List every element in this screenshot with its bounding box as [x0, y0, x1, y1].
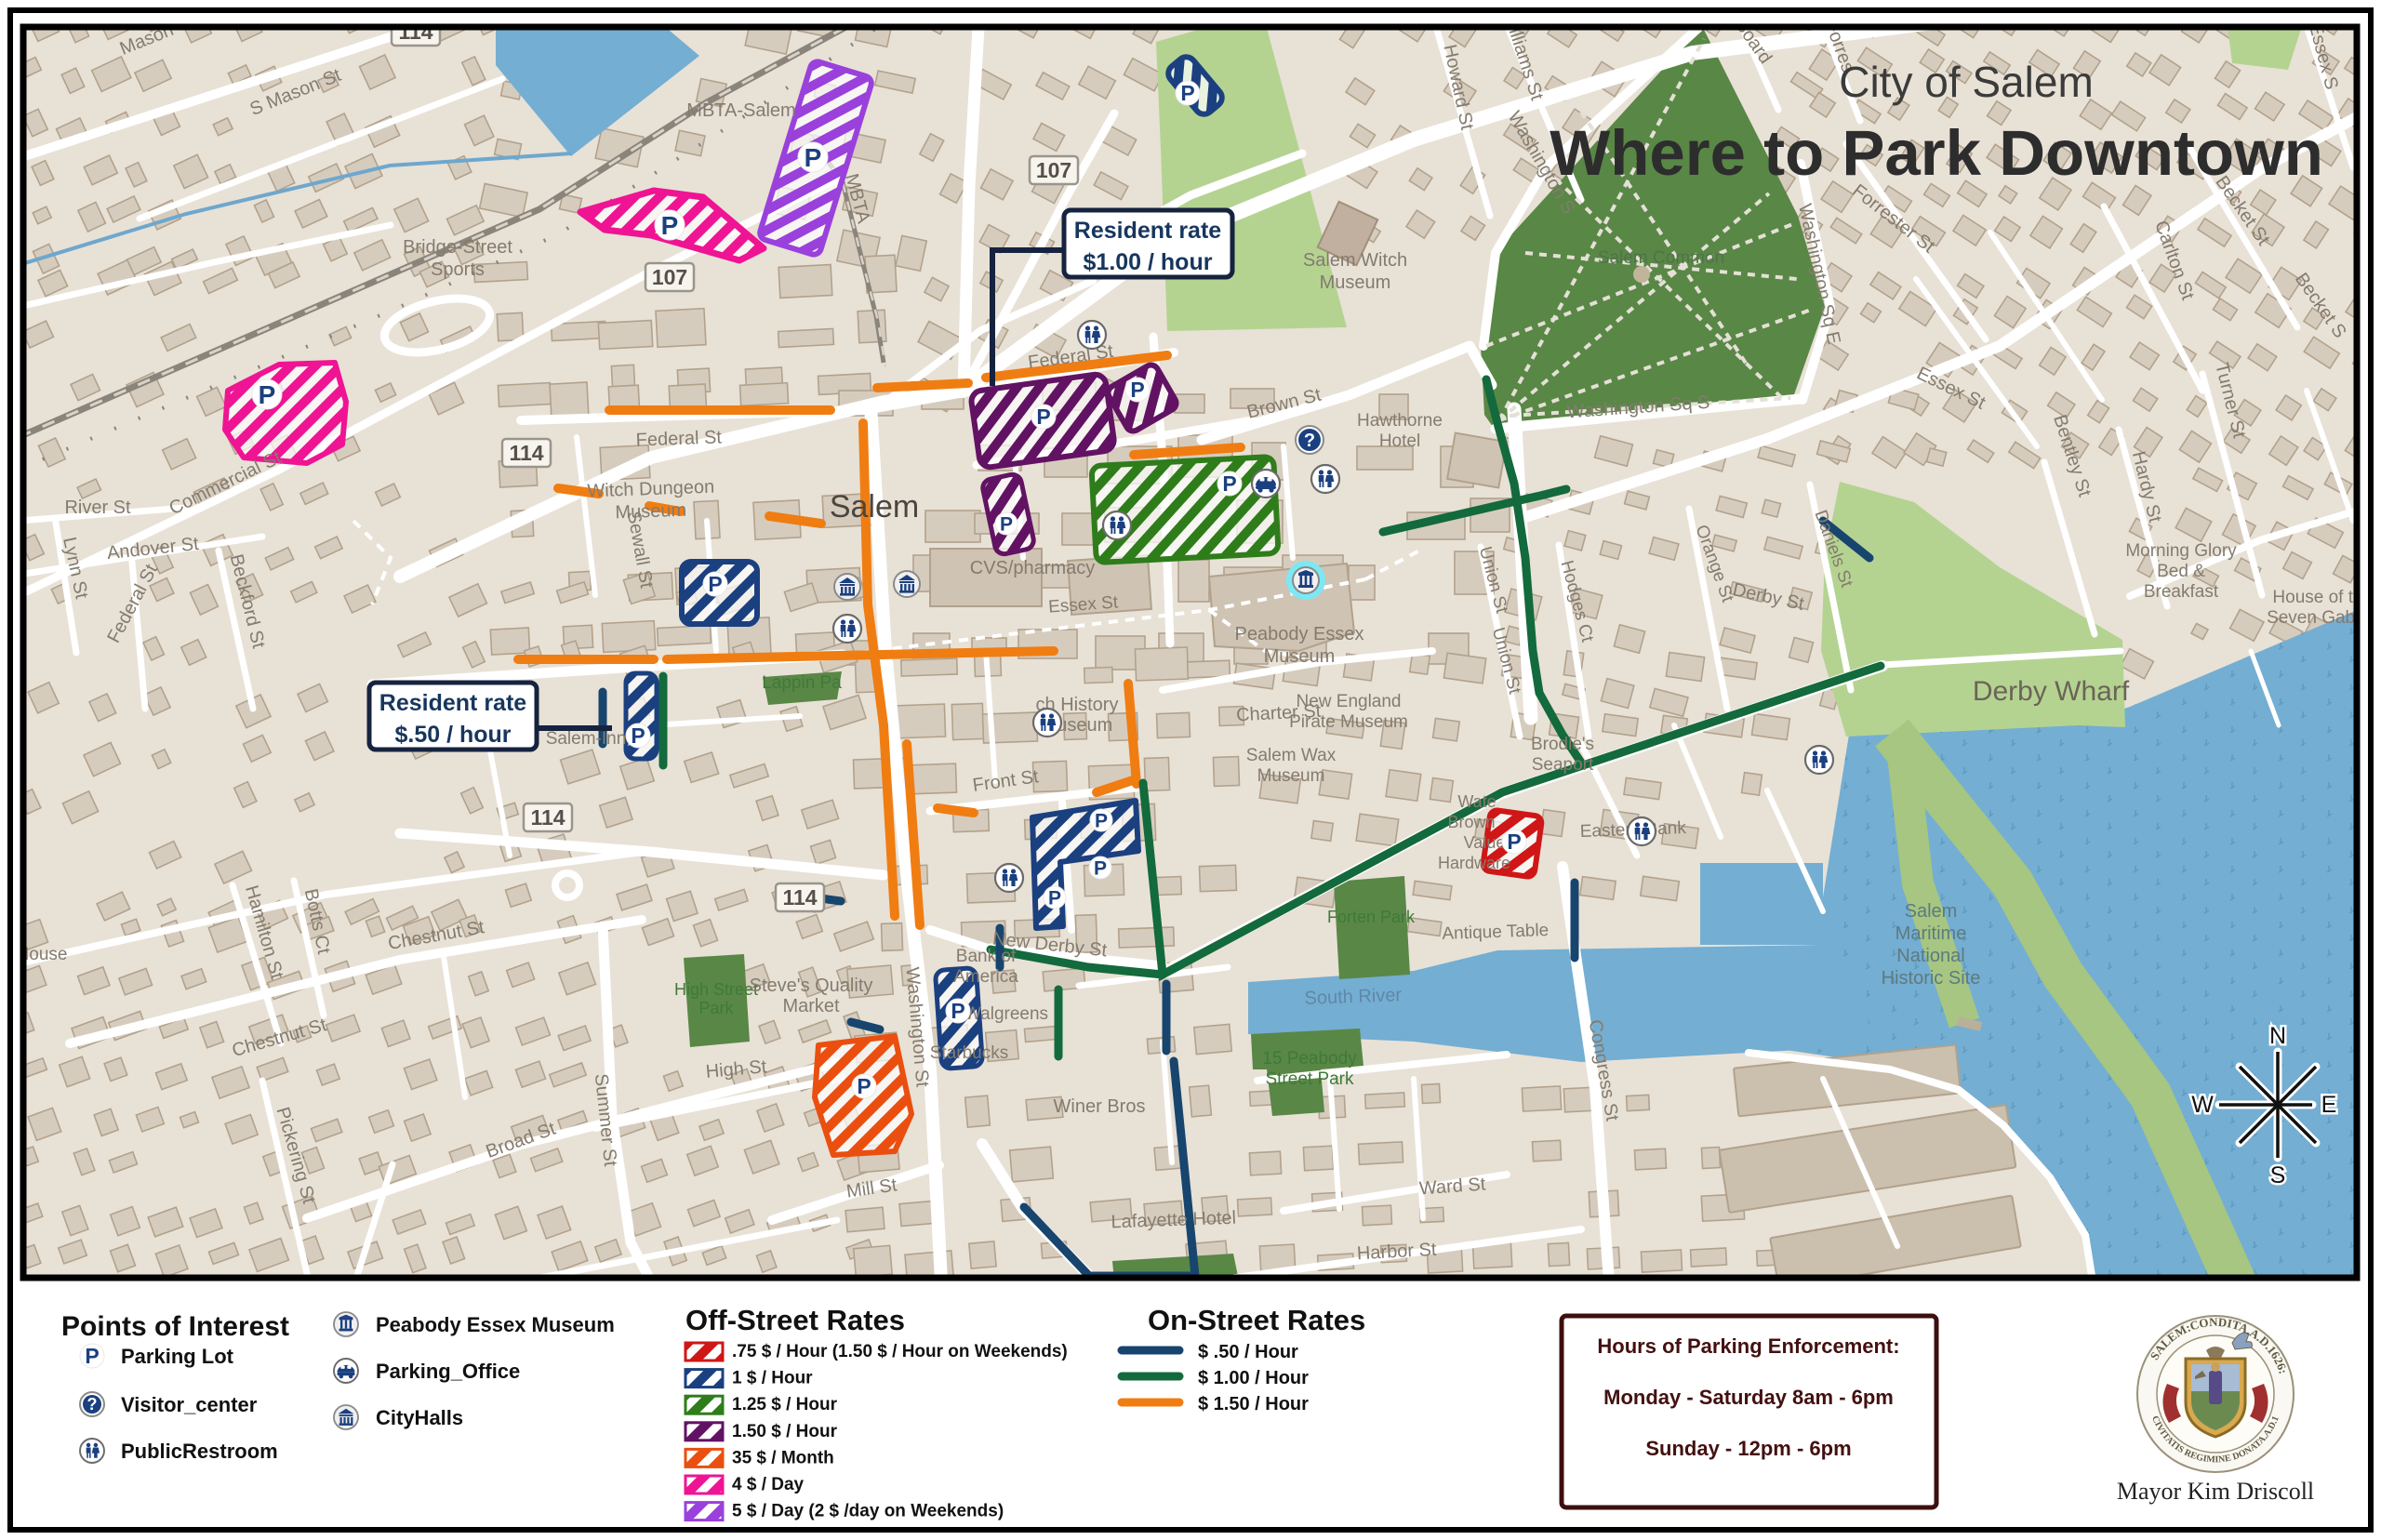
svg-text:P: P [661, 211, 679, 240]
svg-text:$.50 / hour: $.50 / hour [394, 722, 511, 748]
svg-text:4 $ / Day: 4 $ / Day [732, 1475, 805, 1494]
svg-text:$ 1.00 / Hour: $ 1.00 / Hour [1198, 1368, 1309, 1388]
svg-text:P: P [1094, 857, 1107, 879]
svg-text:MBTA-Salem: MBTA-Salem [686, 100, 795, 121]
svg-text:P: P [1048, 887, 1061, 909]
svg-text:Visitor_center: Visitor_center [121, 1393, 258, 1416]
svg-text:Salem Wax: Salem Wax [1246, 746, 1337, 765]
svg-text:P: P [1222, 471, 1236, 496]
svg-text:Winer Bros: Winer Bros [1054, 1096, 1146, 1117]
svg-text:Bed &: Bed & [2157, 562, 2205, 581]
svg-text:1.50 $ / Hour: 1.50 $ / Hour [732, 1422, 838, 1441]
svg-text:CityHalls: CityHalls [376, 1406, 463, 1429]
svg-text:107: 107 [1036, 158, 1071, 182]
svg-text:?: ? [87, 1395, 98, 1414]
svg-text:Bridge-Street: Bridge-Street [403, 237, 512, 258]
svg-text:$1.00 / hour: $1.00 / hour [1084, 249, 1213, 275]
svg-text:P: P [857, 1074, 871, 1098]
svg-text:?: ? [1304, 431, 1315, 451]
svg-text:Parking Lot: Parking Lot [121, 1345, 234, 1368]
svg-text:Derby Wharf: Derby Wharf [1973, 676, 2130, 707]
svg-text:Parking_Office: Parking_Office [376, 1360, 520, 1383]
svg-text:1 $ / Hour: 1 $ / Hour [732, 1369, 813, 1388]
svg-text:Sports: Sports [431, 259, 485, 280]
svg-text:Historic Site: Historic Site [1882, 968, 1981, 989]
svg-text:Museum: Museum [1320, 272, 1391, 293]
svg-text:Pirate Museum: Pirate Museum [1289, 712, 1408, 732]
svg-text:Salem: Salem [1905, 901, 1958, 922]
svg-text:P: P [1095, 810, 1108, 831]
svg-text:Points of Interest: Points of Interest [61, 1311, 289, 1342]
svg-text:Sunday - 12pm - 6pm: Sunday - 12pm - 6pm [1645, 1437, 1851, 1460]
svg-text:W: W [2191, 1092, 2214, 1118]
svg-text:National: National [1896, 946, 1964, 966]
svg-text:Salem: Salem [830, 489, 919, 524]
svg-text:Salem Witch: Salem Witch [1303, 250, 1407, 271]
svg-text:South River: South River [1304, 985, 1403, 1009]
svg-text:N: N [2269, 1023, 2286, 1049]
svg-text:Maritime: Maritime [1895, 923, 1967, 944]
svg-text:Park: Park [698, 999, 734, 1017]
svg-text:Seven Gable: Seven Gable [2267, 608, 2369, 628]
svg-text:America: America [953, 967, 1018, 987]
svg-text:New England: New England [1296, 692, 1401, 711]
svg-text:.75 $ / Hour (1.50 $ / Hour o: .75 $ / Hour (1.50 $ / Hour on Weekends) [732, 1342, 1068, 1361]
svg-text:Hours of Parking Enforcement:: Hours of Parking Enforcement: [1597, 1334, 1899, 1358]
svg-text:P: P [259, 380, 276, 409]
svg-text:Hardware: Hardware [1438, 854, 1510, 872]
svg-text:Brodie's: Brodie's [1531, 735, 1594, 754]
svg-text:Walgreens: Walgreens [964, 1004, 1048, 1024]
svg-text:Brown: Brown [1447, 813, 1495, 831]
svg-text:P: P [951, 999, 964, 1023]
svg-text:35 $ / Month: 35 $ / Month [732, 1448, 834, 1467]
svg-text:Museum: Museum [1264, 646, 1336, 667]
svg-text:Starbucks: Starbucks [930, 1043, 1008, 1063]
svg-text:Monday - Saturday 8am - 6pm: Monday - Saturday 8am - 6pm [1603, 1386, 1894, 1409]
svg-text:P: P [805, 143, 822, 172]
svg-text:114: 114 [782, 885, 817, 909]
svg-text:15 Peabody: 15 Peabody [1262, 1049, 1357, 1069]
svg-text:P: P [1507, 830, 1521, 854]
svg-text:P: P [708, 572, 722, 596]
svg-text:On-Street Rates: On-Street Rates [1148, 1304, 1365, 1336]
svg-text:Breakfast: Breakfast [2144, 582, 2219, 602]
svg-text:Salem Common: Salem Common [1598, 248, 1724, 268]
svg-text:Peabody Essex: Peabody Essex [1235, 624, 1364, 644]
svg-text:Lappin Pa: Lappin Pa [762, 673, 842, 693]
svg-text:Resident rate: Resident rate [1074, 218, 1221, 244]
svg-text:1.25 $ / Hour: 1.25 $ / Hour [732, 1395, 838, 1414]
svg-text:P: P [631, 724, 645, 748]
svg-text:Seaport: Seaport [1532, 755, 1594, 775]
svg-text:Harbor St: Harbor St [1356, 1240, 1437, 1264]
svg-text:Market: Market [782, 996, 840, 1016]
svg-text:P: P [1036, 405, 1050, 429]
svg-text:P: P [1130, 378, 1144, 402]
svg-text:House of th: House of th [2272, 588, 2362, 607]
svg-text:Museum: Museum [1257, 766, 1325, 786]
svg-text:E: E [2321, 1092, 2337, 1118]
svg-text:Steve's Quality: Steve's Quality [750, 976, 873, 996]
svg-text:Off-Street Rates: Off-Street Rates [685, 1304, 905, 1336]
svg-text:River St: River St [64, 498, 131, 518]
svg-text:Street Park: Street Park [1265, 1069, 1354, 1089]
svg-text:CVS/pharmacy: CVS/pharmacy [970, 558, 1096, 578]
svg-text:P: P [1000, 513, 1013, 535]
svg-text:Resident rate: Resident rate [379, 690, 526, 716]
svg-text:City of Salem: City of Salem [1839, 58, 2094, 106]
svg-text:114: 114 [509, 441, 543, 465]
svg-text:Peabody Essex Museum: Peabody Essex Museum [376, 1313, 615, 1336]
svg-text:PublicRestroom: PublicRestroom [121, 1440, 278, 1463]
svg-text:Mayor Kim Driscoll: Mayor Kim Driscoll [2117, 1478, 2314, 1505]
svg-text:Lafayette Hotel: Lafayette Hotel [1111, 1208, 1236, 1233]
svg-text:Wate: Wate [1457, 792, 1496, 811]
svg-text:107: 107 [652, 265, 687, 289]
svg-text:Federal St: Federal St [635, 427, 722, 450]
svg-text:$ .50 / Hour: $ .50 / Hour [1198, 1342, 1298, 1362]
svg-text:5 $ / Day (2 $ /day on Weekend: 5 $ / Day (2 $ /day on Weekends) [732, 1502, 1004, 1521]
svg-text:P: P [85, 1344, 99, 1368]
svg-text:High Street: High Street [674, 980, 758, 999]
svg-text:Salem-Inn: Salem-Inn [546, 729, 627, 749]
svg-text:Morning Glory: Morning Glory [2125, 541, 2237, 561]
svg-text:Hotel: Hotel [1379, 431, 1420, 451]
svg-text:Forten Park: Forten Park [1327, 908, 1416, 926]
svg-text:P: P [1180, 81, 1194, 105]
svg-text:Antique Table: Antique Table [1442, 921, 1549, 944]
svg-text:Where to Park Downtown: Where to Park Downtown [1550, 117, 2323, 189]
svg-text:$ 1.50 / Hour: $ 1.50 / Hour [1198, 1394, 1309, 1414]
svg-text:114: 114 [530, 805, 565, 830]
svg-text:Value: Value [1464, 833, 1506, 852]
svg-text:S: S [2270, 1162, 2286, 1188]
svg-text:Hawthorne: Hawthorne [1357, 411, 1443, 431]
